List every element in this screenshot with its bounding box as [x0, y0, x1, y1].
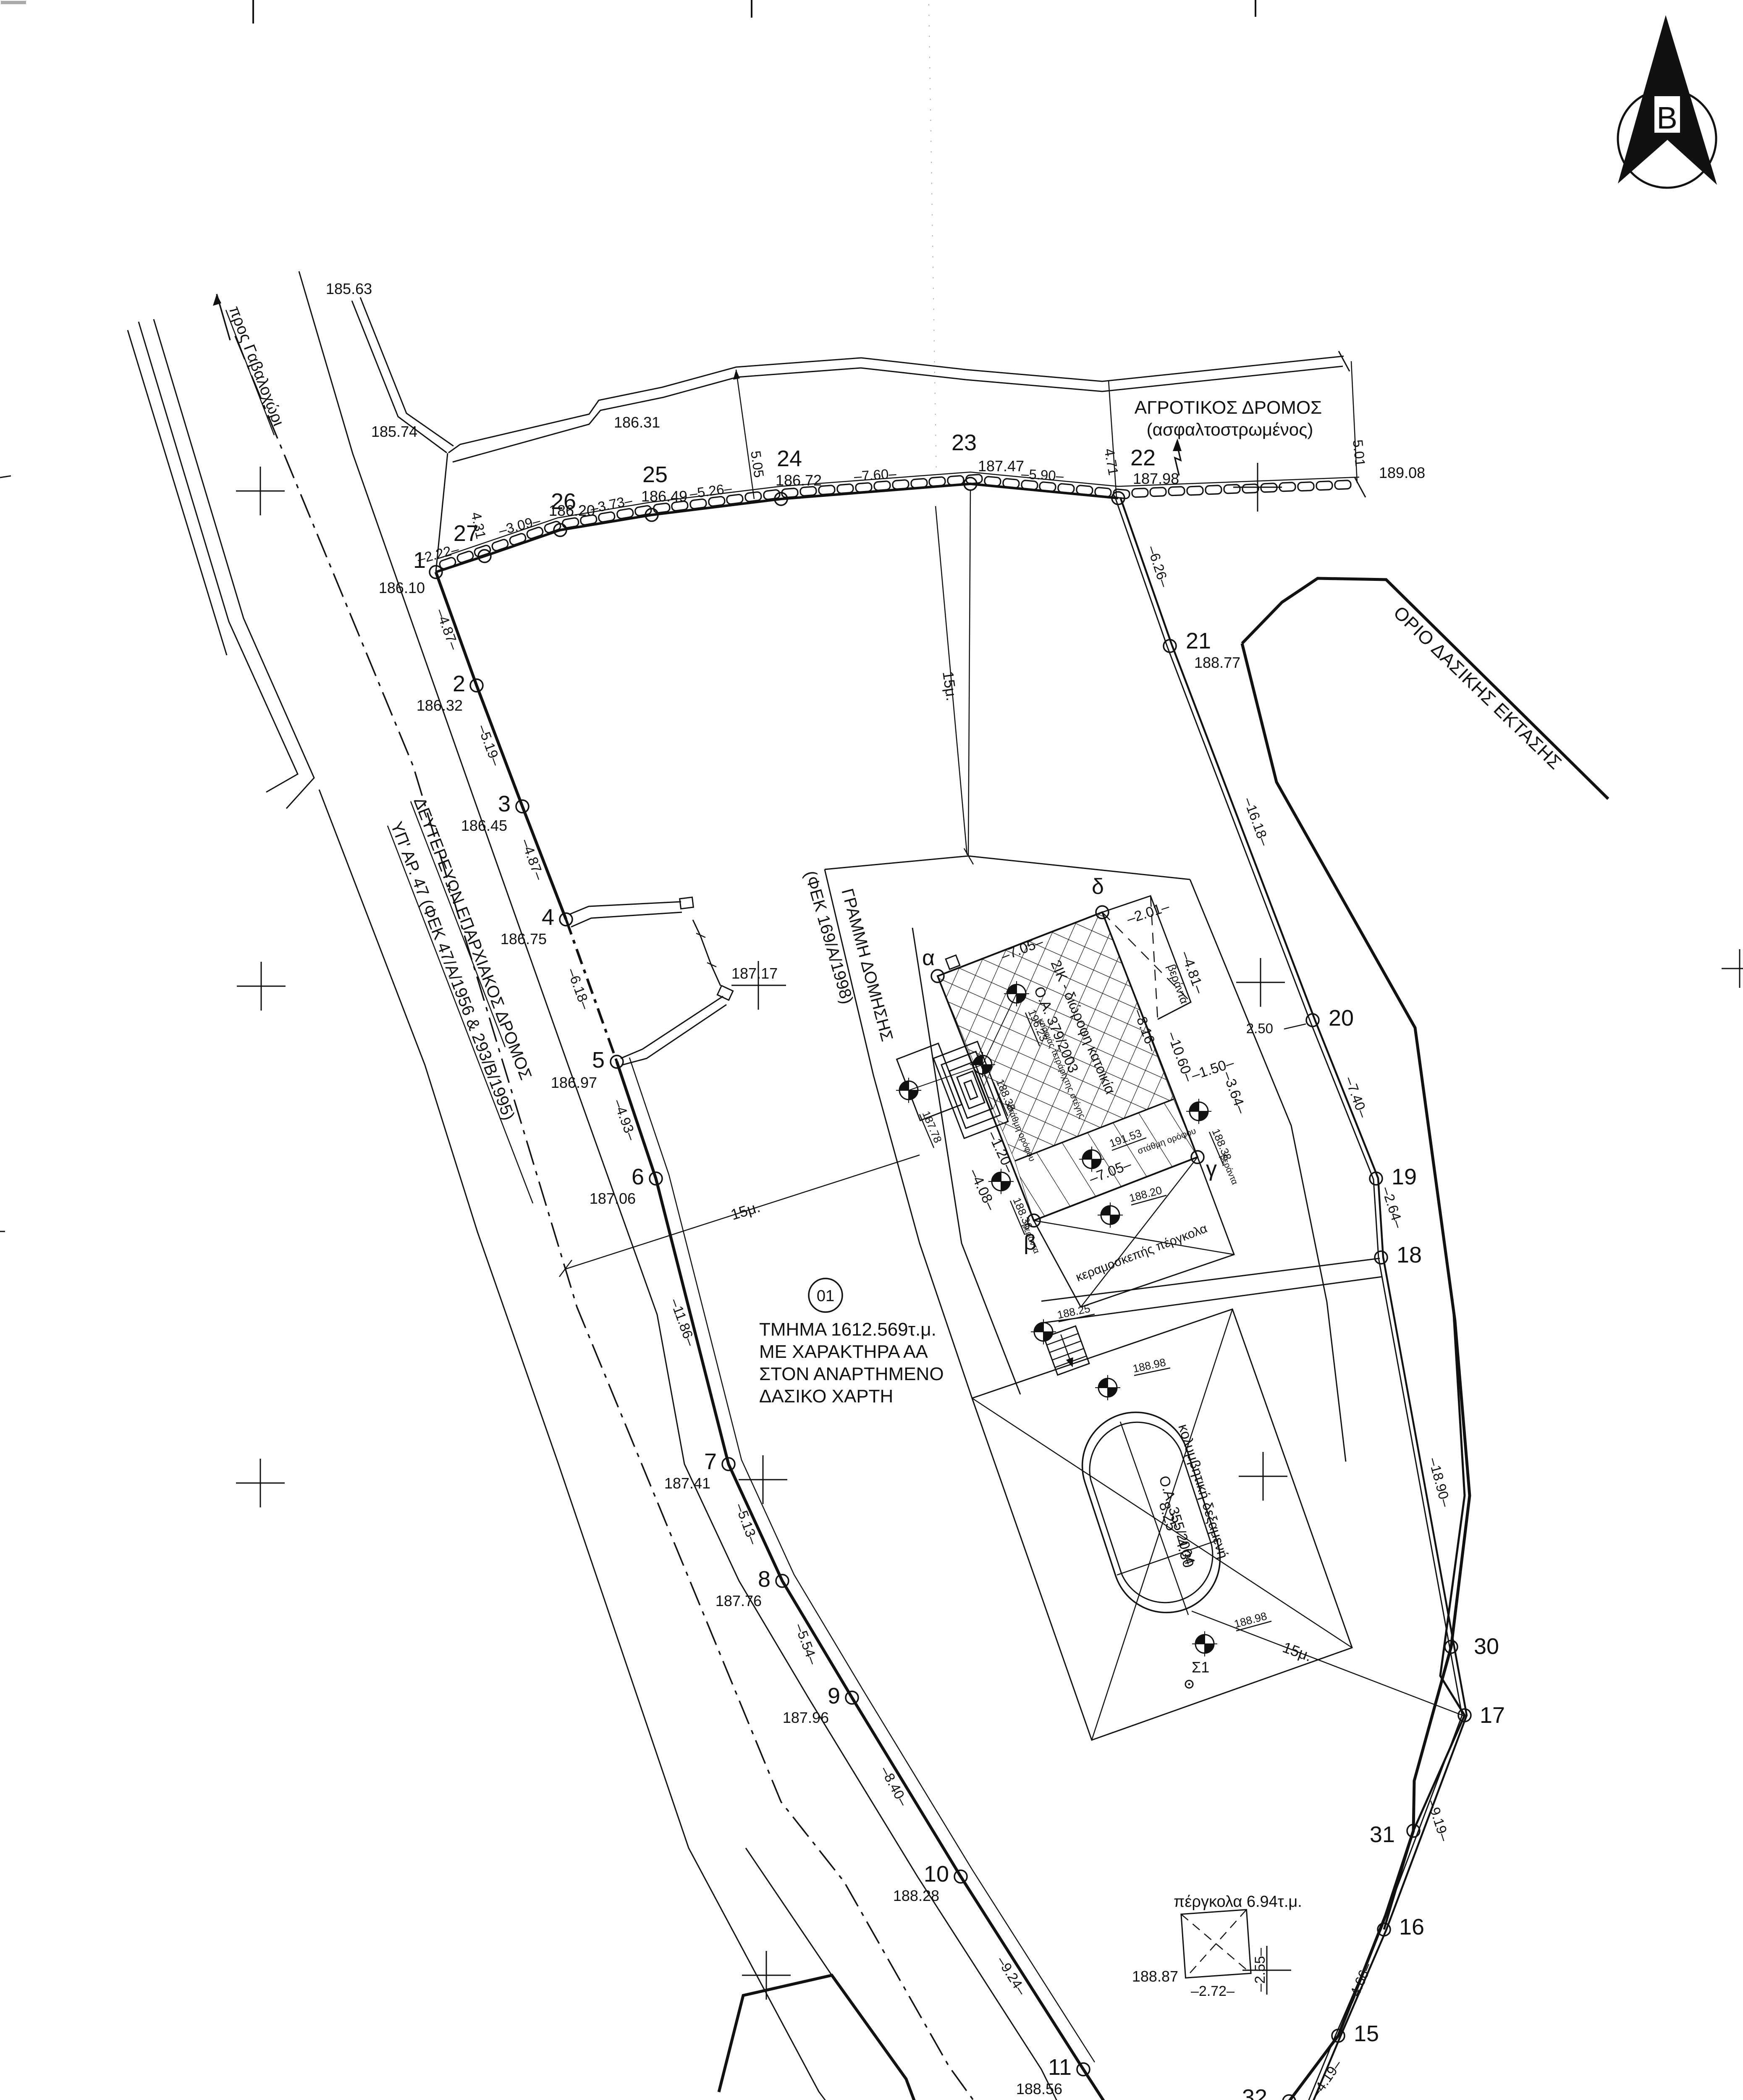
svg-text:187.96: 187.96: [783, 1709, 829, 1726]
svg-text:6: 6: [632, 1164, 644, 1189]
svg-text:187.06: 187.06: [590, 1190, 636, 1207]
svg-text:18: 18: [1397, 1242, 1422, 1268]
svg-text:187.41: 187.41: [664, 1475, 710, 1492]
svg-text:187.47: 187.47: [978, 457, 1024, 475]
svg-text:5.01: 5.01: [1350, 439, 1368, 467]
svg-text:Σ1: Σ1: [1192, 1659, 1209, 1676]
svg-text:5: 5: [592, 1047, 605, 1073]
svg-text:B: B: [1657, 100, 1677, 135]
svg-text:21: 21: [1186, 628, 1211, 654]
svg-text:186.49: 186.49: [641, 488, 687, 505]
svg-text:31: 31: [1370, 1822, 1395, 1847]
svg-text:186.97: 186.97: [551, 1074, 597, 1091]
svg-text:ΑΓΡΟΤΙΚΟΣ ΔΡΟΜΟΣ: ΑΓΡΟΤΙΚΟΣ ΔΡΟΜΟΣ: [1135, 397, 1322, 418]
svg-text:15: 15: [1354, 2021, 1379, 2046]
svg-text:185.63: 185.63: [326, 280, 372, 297]
svg-text:32: 32: [1242, 2085, 1267, 2100]
svg-text:8: 8: [758, 1567, 771, 1592]
svg-text:γ: γ: [1206, 1157, 1217, 1181]
svg-text:2: 2: [453, 671, 465, 696]
svg-text:4: 4: [542, 905, 554, 930]
svg-text:186.75: 186.75: [501, 930, 547, 948]
svg-text:–2.55–: –2.55–: [1252, 1948, 1268, 1992]
svg-text:187.76: 187.76: [716, 1592, 762, 1609]
svg-text:–7.60–: –7.60–: [854, 466, 897, 484]
svg-text:ΤΜΗΜΑ 1612.569τ.μ.: ΤΜΗΜΑ 1612.569τ.μ.: [759, 1319, 936, 1340]
svg-text:(ασφαλτοστρωμένος): (ασφαλτοστρωμένος): [1147, 420, 1313, 439]
svg-text:185.74: 185.74: [371, 423, 417, 440]
svg-text:ΣΤΟΝ ΑΝΑΡΤΗΜΕΝΟ: ΣΤΟΝ ΑΝΑΡΤΗΜΕΝΟ: [759, 1364, 944, 1384]
svg-text:188.28: 188.28: [893, 1887, 939, 1904]
svg-text:186.45: 186.45: [461, 817, 507, 834]
svg-text:3: 3: [498, 791, 511, 816]
svg-text:7: 7: [704, 1449, 717, 1474]
svg-text:ΔΑΣΙΚΟ ΧΑΡΤΗ: ΔΑΣΙΚΟ ΧΑΡΤΗ: [759, 1386, 893, 1407]
svg-text:30: 30: [1474, 1634, 1499, 1659]
svg-text:25: 25: [642, 462, 668, 487]
svg-text:16: 16: [1399, 1914, 1424, 1940]
svg-text:17: 17: [1480, 1703, 1505, 1728]
svg-text:188.87: 188.87: [1132, 1968, 1178, 1985]
svg-text:186.10: 186.10: [379, 579, 425, 596]
svg-text:187.17: 187.17: [731, 965, 778, 982]
svg-text:23: 23: [951, 430, 977, 455]
svg-text:19: 19: [1392, 1164, 1417, 1189]
svg-text:188.56: 188.56: [1016, 2080, 1062, 2097]
svg-text:189.08: 189.08: [1379, 464, 1425, 481]
svg-text:–2.72–: –2.72–: [1191, 1983, 1235, 1999]
svg-text:186.31: 186.31: [614, 414, 660, 431]
svg-text:22: 22: [1130, 445, 1156, 470]
svg-text:188.77: 188.77: [1194, 654, 1240, 671]
svg-text:δ: δ: [1092, 874, 1104, 899]
svg-text:πέργκολα 6.94τ.μ.: πέργκολα 6.94τ.μ.: [1174, 1893, 1302, 1911]
svg-text:186.20: 186.20: [549, 502, 595, 519]
svg-text:27: 27: [453, 521, 479, 546]
svg-text:187.98: 187.98: [1133, 470, 1179, 487]
svg-text:186.72: 186.72: [776, 472, 822, 489]
svg-text:–5.90–: –5.90–: [1021, 466, 1064, 483]
svg-text:20: 20: [1329, 1005, 1354, 1031]
svg-text:9: 9: [828, 1683, 840, 1709]
svg-text:24: 24: [777, 446, 802, 471]
svg-text:01: 01: [817, 1287, 834, 1305]
svg-text:10: 10: [924, 1861, 949, 1887]
svg-text:α: α: [922, 946, 935, 970]
svg-text:2.50: 2.50: [1246, 1021, 1273, 1036]
svg-text:11: 11: [1048, 2055, 1072, 2080]
svg-text:186.32: 186.32: [417, 697, 463, 714]
svg-text:ΜΕ ΧΑΡΑΚΤΗΡΑ ΑΑ: ΜΕ ΧΑΡΑΚΤΗΡΑ ΑΑ: [759, 1341, 928, 1362]
